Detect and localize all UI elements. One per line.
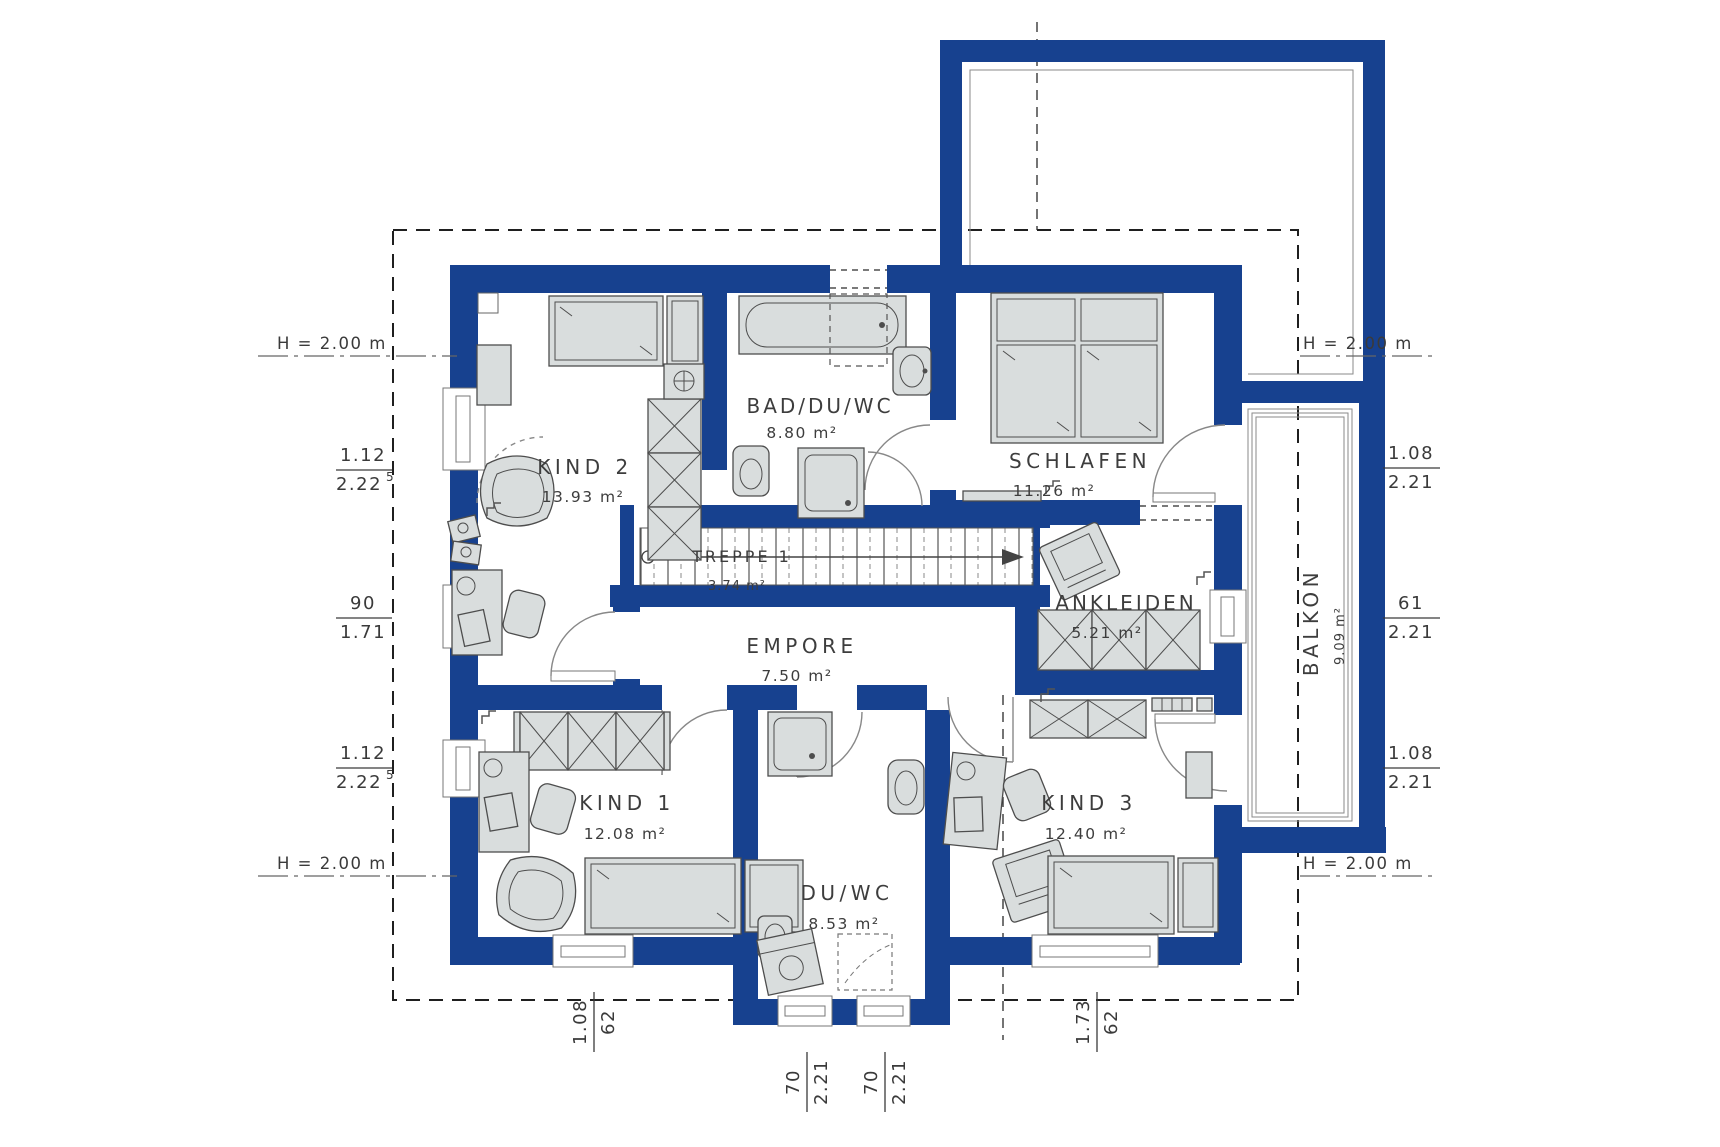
height-marker-label: H = 2.00 m (277, 334, 387, 353)
dim-value: 2.21 (1388, 772, 1434, 793)
dim-value: 2.22 (336, 474, 382, 495)
window-icon (1210, 590, 1246, 643)
radiator-icon (1197, 572, 1211, 585)
bed-icon (1048, 856, 1218, 934)
dim-value: 61 (1398, 593, 1424, 614)
height-marker-label: H = 2.00 m (277, 854, 387, 873)
toilet-icon (888, 760, 924, 814)
radiator-icon (482, 711, 496, 724)
room-label-balkon: BALKON (1299, 568, 1323, 676)
room-label-schlafen: SCHLAFEN (1009, 449, 1151, 473)
room-label-bad-du-wc: BAD/DU/WC (746, 394, 893, 418)
bathtub-icon (739, 296, 906, 354)
dim-value: 1.12 (340, 445, 386, 466)
bed-icon (549, 296, 703, 366)
height-marker-label: H = 2.00 m (1303, 334, 1413, 353)
room-label-kind3: KIND 3 (1041, 791, 1136, 815)
window-icon (778, 996, 832, 1026)
shower-icon (768, 712, 832, 776)
door-icon (868, 452, 922, 506)
dim-value: 62 (1101, 1009, 1122, 1035)
dim-value: 2.21 (1388, 622, 1434, 643)
dim-value: 62 (598, 1009, 619, 1035)
cabinet-icon (1186, 752, 1212, 798)
dim-value: 1.73 (1073, 999, 1094, 1045)
floor-plan-canvas: H = 2.00 m H = 2.00 m H = 2.00 m H = 2.0… (0, 0, 1720, 1147)
dim-value: 1.08 (570, 999, 591, 1045)
room-area-balkon: 9.09 m² (1333, 607, 1348, 665)
dimensions-right: 1.08 2.21 61 2.21 1.08 2.21 (1383, 443, 1440, 793)
room-label-ankleiden: ANKLEIDEN (1055, 591, 1196, 615)
window-icon (553, 935, 633, 967)
room-area-ankleiden: 5.21 m² (1071, 624, 1142, 642)
dim-value: 2.21 (811, 1059, 832, 1105)
door-icon (551, 612, 615, 681)
room-label-empore: EMPORE (746, 634, 857, 658)
double-bed-icon (991, 293, 1163, 443)
shelf-icon (1152, 698, 1212, 711)
desk-icon (448, 515, 547, 655)
room-area-treppe: 3.74 m² (708, 579, 766, 594)
wardrobe-icon (514, 712, 670, 770)
room-label-treppe: TREPPE 1 (691, 547, 792, 566)
armchair-icon (490, 850, 582, 939)
room-label-kind2: KIND 2 (537, 455, 632, 479)
corner-notch (478, 293, 498, 313)
dim-value: 90 (350, 593, 376, 614)
door-icon (1153, 425, 1225, 502)
armchair-icon (1038, 521, 1121, 601)
shower-icon (798, 448, 864, 518)
height-marker-label: H = 2.00 m (1303, 854, 1413, 873)
room-area-kind1: 12.08 m² (584, 825, 667, 843)
wardrobe-icon (648, 399, 701, 560)
dim-value: 70 (861, 1069, 882, 1095)
desk-icon (943, 752, 1006, 849)
toilet-icon (733, 446, 769, 496)
door-icon (865, 425, 930, 490)
sink-icon (893, 347, 931, 395)
dim-value: 1.08 (1388, 743, 1434, 764)
dim-value: 1.71 (340, 622, 386, 643)
door-icon (662, 710, 727, 775)
dim-sup: 5 (386, 470, 394, 484)
dryer-dashed-icon (838, 934, 892, 990)
wardrobe-icon (1030, 700, 1146, 738)
window-icon (857, 996, 910, 1026)
dim-sup: 5 (386, 768, 394, 782)
dim-value: 70 (783, 1069, 804, 1095)
room-area-empore: 7.50 m² (761, 667, 832, 685)
room-label-du-wc: DU/WC (800, 881, 893, 905)
window-icon (1032, 935, 1158, 967)
dim-value: 1.12 (340, 743, 386, 764)
room-area-kind2: 13.93 m² (542, 488, 625, 506)
dim-value: 2.21 (889, 1059, 910, 1105)
dim-value: 2.21 (1388, 472, 1434, 493)
room-area-schlafen: 11.26 m² (1013, 482, 1096, 500)
room-label-kind1: KIND 1 (579, 791, 674, 815)
dimensions-left: 1.12 2.22 5 90 1.71 1.12 2.22 5 (336, 445, 394, 793)
dresser-icon (477, 345, 511, 405)
dim-value: 1.08 (1388, 443, 1434, 464)
ceiling-lamp-icon (664, 364, 704, 399)
dim-value: 2.22 (336, 772, 382, 793)
room-area-bad-du-wc: 8.80 m² (766, 424, 837, 442)
washing-machine-icon (757, 929, 823, 995)
room-area-kind3: 12.40 m² (1045, 825, 1128, 843)
room-area-du-wc: 8.53 m² (808, 915, 879, 933)
